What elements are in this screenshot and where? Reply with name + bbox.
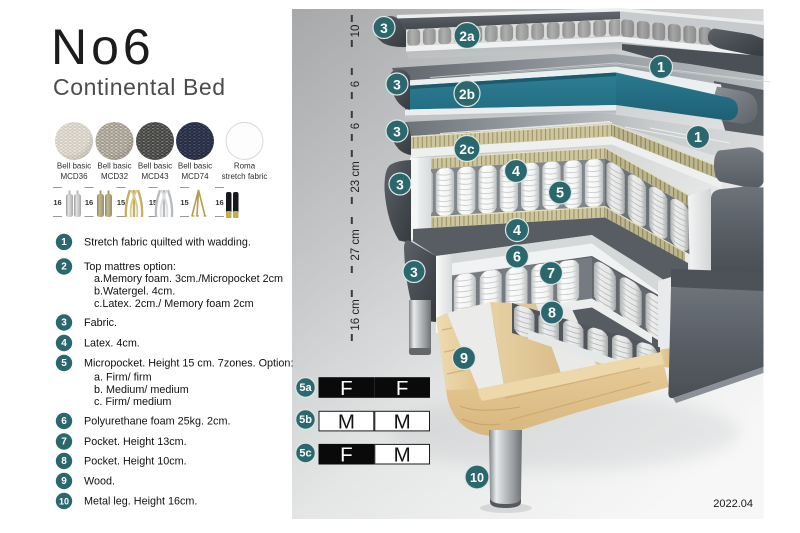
svg-text:10: 10 bbox=[350, 25, 362, 38]
svg-text:Bell basic: Bell basic bbox=[97, 162, 131, 171]
svg-text:2c: 2c bbox=[459, 142, 475, 157]
svg-text:Bell basic: Bell basic bbox=[57, 162, 91, 171]
svg-text:Fabric.: Fabric. bbox=[84, 317, 117, 329]
svg-text:6: 6 bbox=[350, 81, 362, 87]
svg-text:Stretch fabric quilted with wa: Stretch fabric quilted with wadding. bbox=[84, 237, 251, 249]
svg-text:7: 7 bbox=[547, 266, 555, 282]
svg-text:Metal leg. Height 16cm.: Metal leg. Height 16cm. bbox=[84, 496, 197, 508]
svg-text:6: 6 bbox=[513, 249, 521, 265]
svg-text:Roma: Roma bbox=[234, 162, 256, 171]
svg-text:b.Watergel. 4cm.: b.Watergel. 4cm. bbox=[94, 286, 175, 298]
svg-text:F: F bbox=[340, 377, 353, 400]
svg-text:1: 1 bbox=[657, 60, 665, 76]
svg-text:1: 1 bbox=[61, 237, 67, 248]
svg-text:b. Medium/ medium: b. Medium/ medium bbox=[94, 384, 189, 396]
svg-text:16: 16 bbox=[53, 198, 61, 207]
svg-text:MCD36: MCD36 bbox=[60, 172, 88, 181]
svg-text:23 cm: 23 cm bbox=[350, 161, 362, 192]
svg-text:MCD32: MCD32 bbox=[101, 172, 129, 181]
svg-text:3: 3 bbox=[393, 77, 401, 92]
svg-text:9: 9 bbox=[61, 476, 67, 487]
svg-text:M: M bbox=[394, 444, 411, 467]
svg-text:15: 15 bbox=[117, 198, 125, 207]
svg-text:Micropocket. Height 15 cm. 7zo: Micropocket. Height 15 cm. 7zones. Optio… bbox=[84, 358, 293, 370]
svg-text:5: 5 bbox=[556, 185, 564, 201]
svg-text:c.Latex. 2cm./ Memory foam 2cm: c.Latex. 2cm./ Memory foam 2cm bbox=[94, 298, 254, 310]
svg-text:2: 2 bbox=[61, 262, 67, 273]
svg-text:5: 5 bbox=[61, 358, 67, 369]
svg-text:16: 16 bbox=[215, 198, 223, 207]
svg-text:M: M bbox=[338, 411, 355, 434]
svg-text:10: 10 bbox=[470, 471, 484, 485]
svg-text:4: 4 bbox=[512, 164, 520, 180]
svg-text:5b: 5b bbox=[299, 414, 312, 426]
svg-text:15: 15 bbox=[180, 198, 188, 207]
svg-text:Top mattres option:: Top mattres option: bbox=[84, 261, 176, 273]
svg-text:2022.04: 2022.04 bbox=[713, 498, 753, 510]
svg-text:MCD43: MCD43 bbox=[141, 172, 169, 181]
svg-text:7: 7 bbox=[61, 437, 67, 448]
svg-text:6: 6 bbox=[61, 416, 67, 427]
svg-text:6: 6 bbox=[350, 123, 362, 129]
svg-text:16: 16 bbox=[85, 198, 93, 207]
svg-text:3: 3 bbox=[410, 265, 418, 280]
svg-text:8: 8 bbox=[61, 456, 67, 467]
svg-text:3: 3 bbox=[380, 21, 388, 36]
svg-text:9: 9 bbox=[460, 351, 468, 367]
svg-text:stretch fabric: stretch fabric bbox=[222, 172, 268, 181]
svg-text:3: 3 bbox=[393, 124, 401, 139]
svg-text:Bell basic: Bell basic bbox=[138, 162, 172, 171]
svg-text:a. Firm/ firm: a. Firm/ firm bbox=[94, 372, 152, 384]
svg-text:MCD74: MCD74 bbox=[181, 172, 209, 181]
svg-text:2a: 2a bbox=[459, 29, 475, 44]
svg-text:Bell basic: Bell basic bbox=[178, 162, 212, 171]
svg-text:Latex. 4cm.: Latex. 4cm. bbox=[84, 338, 140, 350]
svg-text:5a: 5a bbox=[299, 382, 312, 394]
svg-text:8: 8 bbox=[548, 305, 556, 321]
svg-text:c. Firm/ medium: c. Firm/ medium bbox=[94, 396, 171, 408]
svg-text:Pocket. Height 13cm.: Pocket. Height 13cm. bbox=[84, 436, 187, 448]
svg-text:Wood.: Wood. bbox=[84, 476, 115, 488]
svg-text:16 cm: 16 cm bbox=[350, 299, 362, 330]
svg-text:4: 4 bbox=[61, 338, 67, 349]
svg-text:27 cm: 27 cm bbox=[350, 229, 362, 260]
svg-text:2b: 2b bbox=[459, 87, 475, 102]
svg-text:3: 3 bbox=[396, 177, 404, 192]
svg-text:3: 3 bbox=[61, 318, 67, 329]
svg-text:10: 10 bbox=[59, 497, 69, 507]
svg-text:a.Memory foam. 3cm./Micropocke: a.Memory foam. 3cm./Micropocket 2cm bbox=[94, 273, 283, 285]
svg-text:F: F bbox=[340, 444, 353, 467]
svg-text:Pocket. Height 10cm.: Pocket. Height 10cm. bbox=[84, 456, 187, 468]
svg-text:4: 4 bbox=[513, 223, 521, 239]
svg-text:Polyurethane foam 25kg. 2cm.: Polyurethane foam 25kg. 2cm. bbox=[84, 416, 230, 428]
svg-text:5c: 5c bbox=[299, 448, 311, 460]
svg-text:1: 1 bbox=[694, 130, 702, 146]
svg-text:M: M bbox=[394, 411, 411, 434]
svg-text:F: F bbox=[396, 377, 409, 400]
